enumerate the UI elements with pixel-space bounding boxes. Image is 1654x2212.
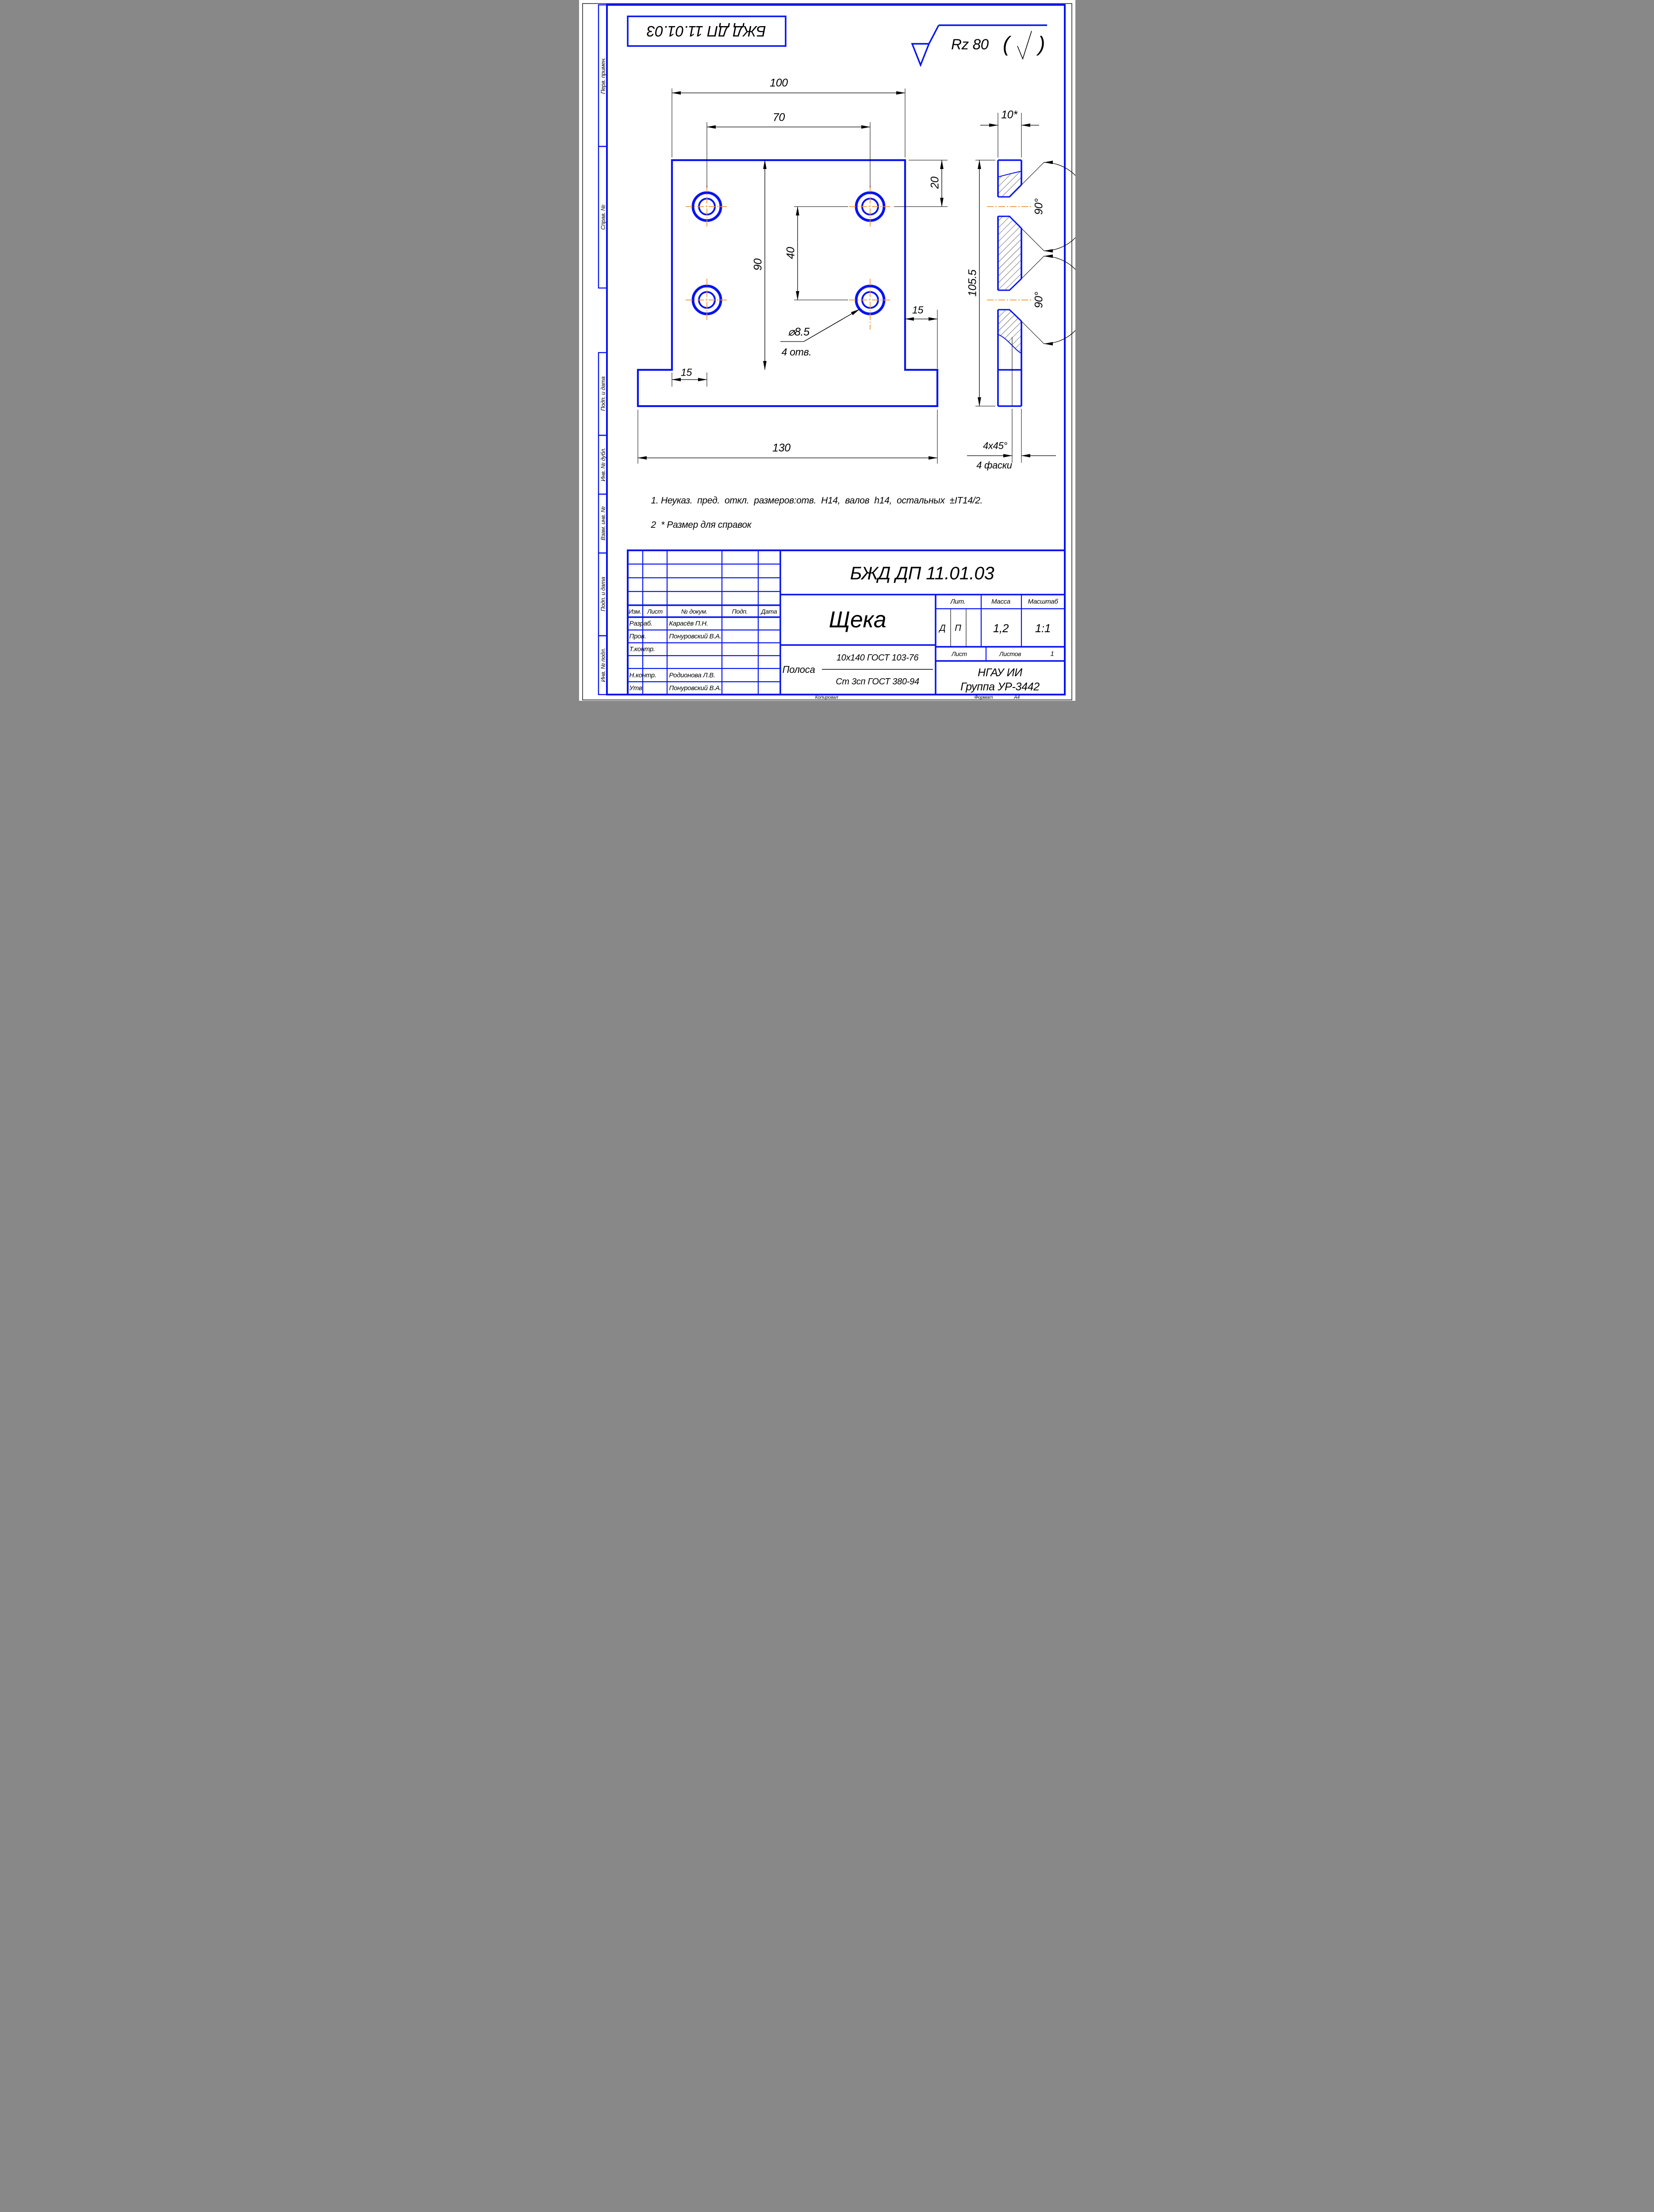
tb-material-kind: Полоса: [783, 665, 815, 675]
tb-lit-1: Д: [940, 624, 946, 633]
tb-row-name: Родионова Л.В.: [669, 672, 715, 679]
tb-col-podp: Подп.: [732, 608, 748, 614]
drawing-geometry: [579, 0, 1075, 701]
tb-col-data: Дата: [761, 608, 777, 614]
tb-row-role: Разраб.: [629, 620, 652, 627]
dim-100: 100: [770, 78, 788, 89]
roughness-paren-left: (: [1003, 34, 1009, 54]
tb-row-name: Понуровский В.А.: [669, 633, 721, 640]
tb-sheets-value: 1: [1050, 651, 1054, 657]
dim-chamfer: 4x45°: [983, 441, 1007, 451]
margin-label-vzam-inv: Взам. инв. №: [600, 507, 606, 541]
tb-col-ndoc: № докум.: [681, 608, 707, 614]
side-view: [998, 160, 1021, 406]
tb-row-role: Пров.: [629, 633, 646, 640]
tb-sheets-label: Листов: [999, 651, 1021, 657]
tb-row-name: Понуровский В.А.: [669, 685, 721, 691]
footer-format-value: А4: [1014, 695, 1020, 700]
roughness-paren-right: ): [1038, 34, 1045, 54]
angle-90-top: 90°: [1033, 199, 1044, 215]
tb-lit-label: Лит.: [951, 599, 966, 605]
tb-sheet-label: Лист: [952, 651, 967, 657]
dim-105-5: 105.5: [967, 269, 978, 296]
tb-scale-label: Масштаб: [1028, 599, 1058, 605]
margin-label-inv-dubl: Инв. № дубл.: [600, 448, 606, 481]
dim-15-left: 15: [681, 368, 692, 378]
dim-10-star: 10*: [1001, 110, 1017, 121]
side-view-hatch: [998, 171, 1021, 353]
tb-designation: БЖД ДП 11.01.03: [850, 565, 994, 583]
dim-130: 130: [772, 443, 791, 454]
margin-label-podp-data-2: Подп. и дата: [600, 577, 606, 611]
tb-mass-value: 1,2: [993, 622, 1009, 634]
footer-format-label: Формат: [975, 695, 993, 700]
dim-70: 70: [773, 112, 785, 123]
tb-part-name: Щека: [829, 608, 886, 631]
tb-material-top: 10х140 ГОСТ 103-76: [837, 653, 918, 662]
margin-label-podp-data-1: Подп. и дата: [600, 376, 606, 411]
margin-label-sprav-no: Справ. №: [600, 205, 606, 230]
note-line-1: 1. Неуказ. пред. откл. размеров:отв. Н14…: [651, 496, 983, 505]
tb-row-role: Т.контр.: [629, 646, 655, 653]
dim-90: 90: [752, 258, 764, 270]
dim-15-right: 15: [912, 305, 923, 315]
tb-row-role: Н.контр.: [629, 672, 656, 679]
tb-mass-label: Масса: [991, 599, 1010, 605]
dim-20: 20: [929, 177, 940, 188]
dim-diameter: ⌀8.5: [788, 327, 810, 338]
drawing-sheet: БЖД ДП 11.01.03 Rz 80 ( ) Перв. примен. …: [579, 0, 1075, 701]
tb-row-name: Карасёв П.Н.: [669, 620, 708, 627]
roughness-value: Rz 80: [951, 37, 989, 52]
tb-col-list: Лист: [647, 608, 663, 614]
tb-group: Группа УР-3442: [960, 682, 1040, 693]
margin-label-inv-podl: Инв. № подл.: [600, 648, 606, 682]
dim-chamfer-note: 4 фаски: [976, 461, 1012, 470]
tb-col-izm: Изм.: [629, 608, 641, 614]
footer-copied: Копировал: [815, 695, 838, 700]
extension-lines: [638, 88, 1044, 464]
tb-scale-value: 1:1: [1035, 622, 1051, 634]
top-stamp-designation: БЖД ДП 11.01.03: [647, 23, 766, 38]
tb-row-role: Утв.: [629, 685, 644, 691]
tb-material-bottom: Ст 3сп ГОСТ 380-94: [836, 677, 919, 686]
dim-40: 40: [785, 247, 796, 259]
margin-label-perv-primen: Перв. примен.: [600, 58, 606, 94]
note-line-2: 2 * Размер для справок: [651, 520, 752, 530]
dim-holes-count: 4 отв.: [782, 347, 812, 357]
angle-90-bottom: 90°: [1033, 292, 1044, 308]
tb-org: НГАУ ИИ: [978, 668, 1022, 679]
tb-lit-2: П: [955, 624, 961, 633]
